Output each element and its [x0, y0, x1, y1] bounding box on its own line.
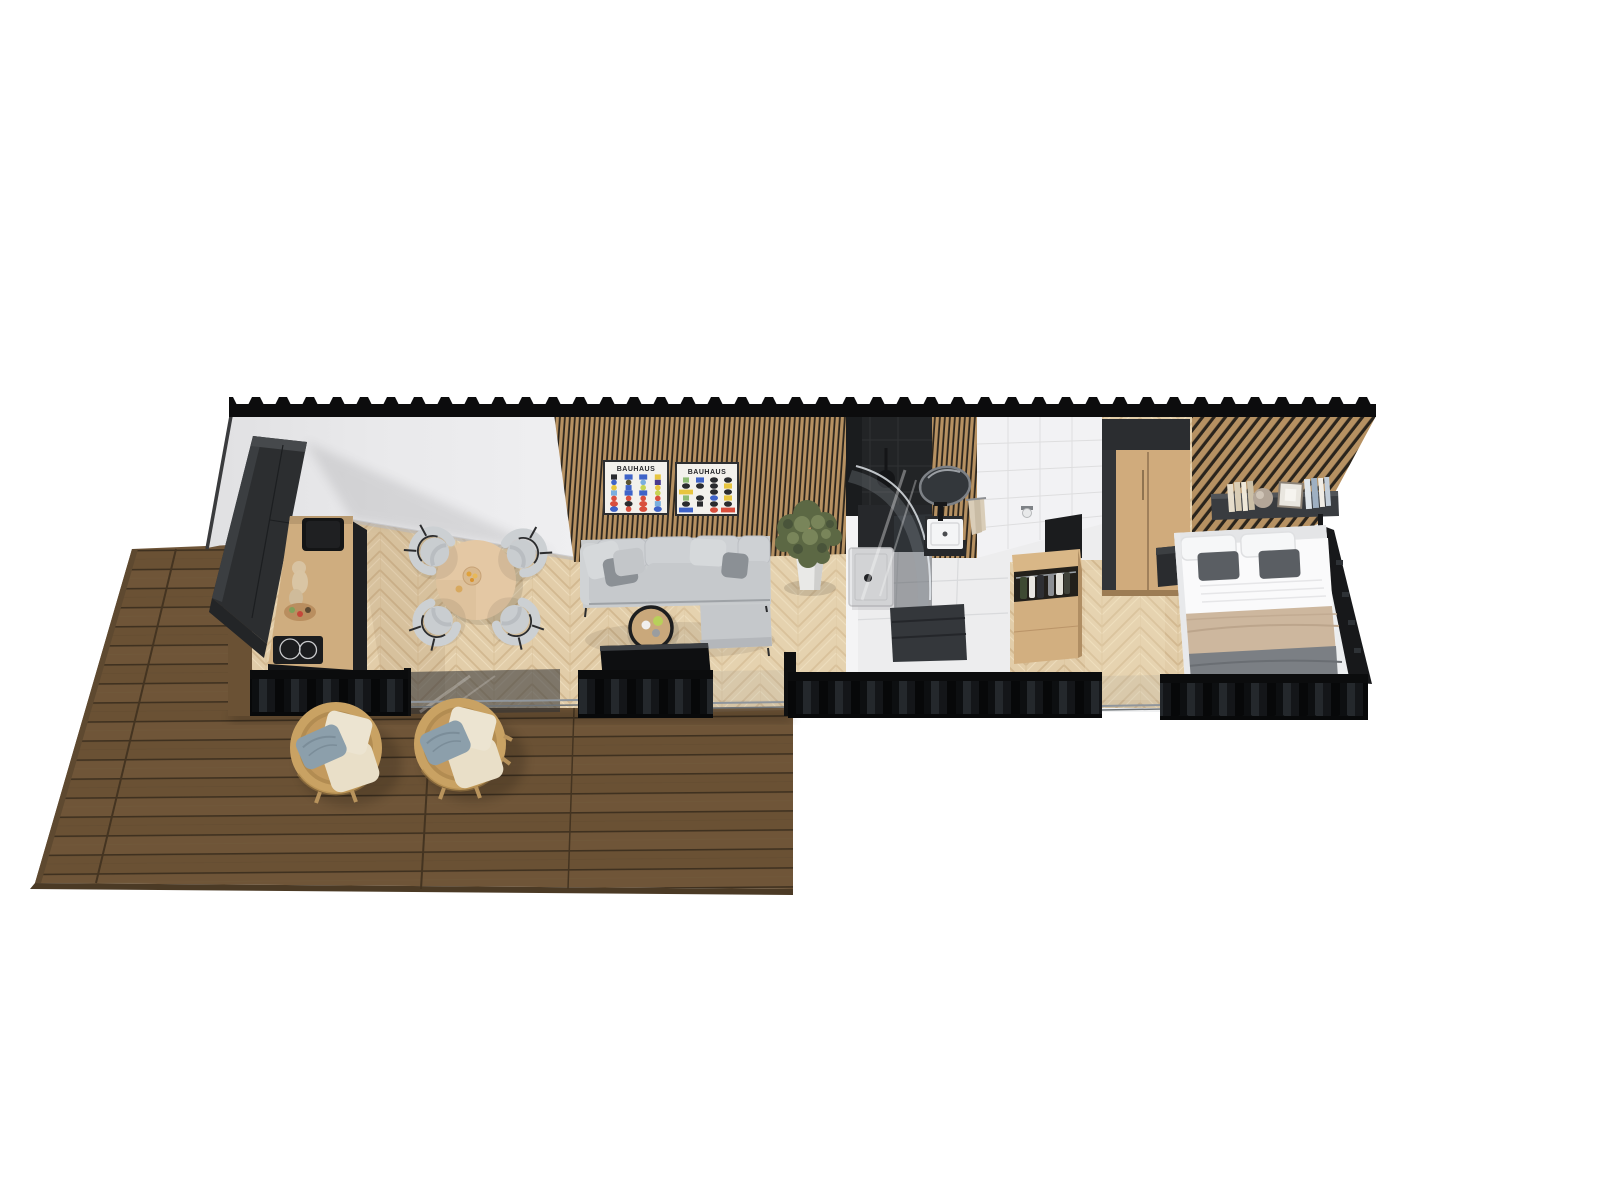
svg-text:BAUHAUS: BAUHAUS	[617, 466, 656, 473]
svg-text:BAUHAUS: BAUHAUS	[688, 469, 727, 476]
